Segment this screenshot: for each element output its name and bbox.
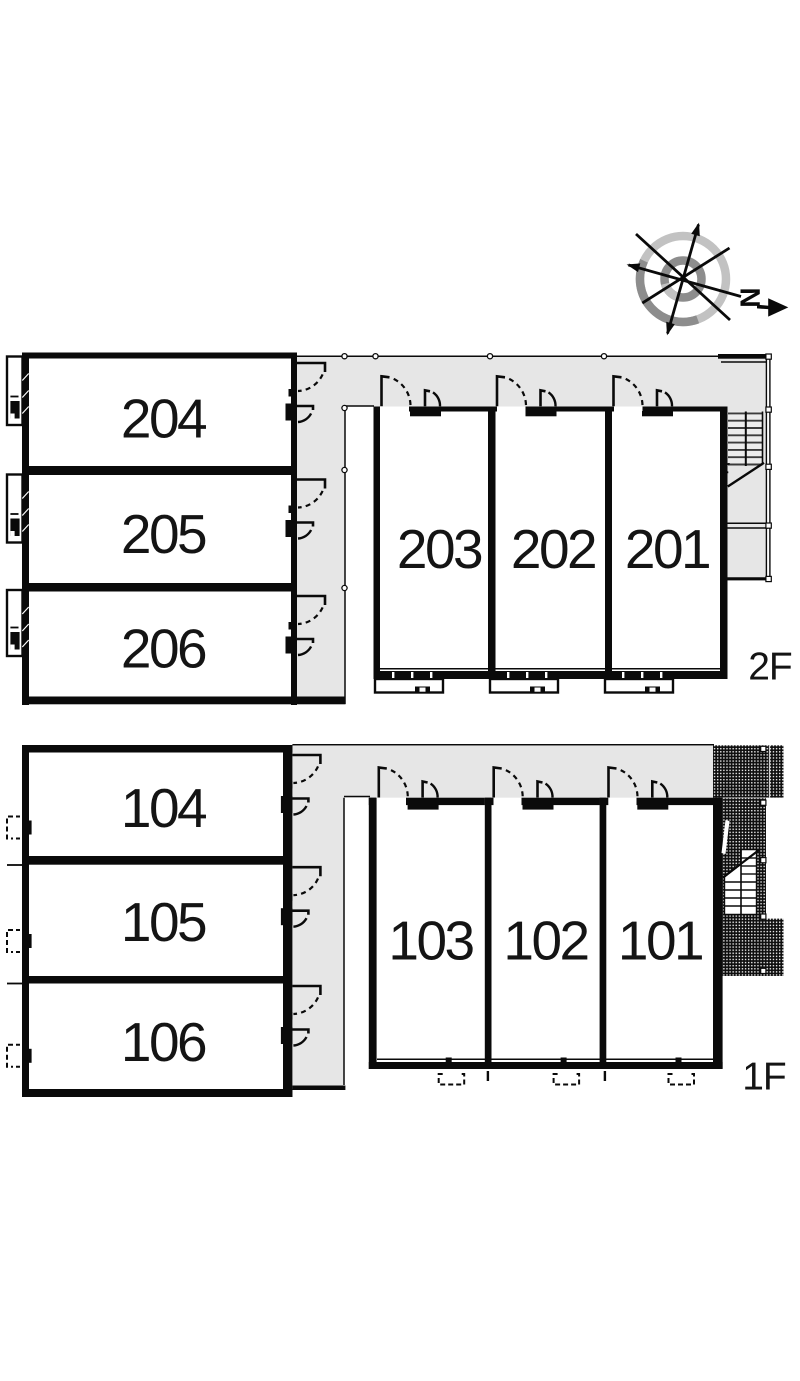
- svg-text:102: 102: [503, 910, 587, 972]
- svg-text:101: 101: [618, 910, 702, 972]
- svg-text:106: 106: [121, 1011, 206, 1073]
- svg-text:105: 105: [121, 891, 206, 953]
- svg-text:204: 204: [121, 388, 206, 450]
- svg-text:103: 103: [388, 910, 473, 972]
- svg-text:1F: 1F: [742, 1056, 786, 1099]
- svg-text:205: 205: [121, 503, 206, 565]
- svg-text:203: 203: [397, 518, 482, 580]
- svg-text:2F: 2F: [748, 646, 792, 689]
- svg-text:206: 206: [121, 618, 206, 680]
- svg-text:N: N: [735, 288, 766, 308]
- svg-text:104: 104: [121, 777, 206, 839]
- svg-text:202: 202: [511, 518, 595, 580]
- svg-text:201: 201: [625, 518, 709, 580]
